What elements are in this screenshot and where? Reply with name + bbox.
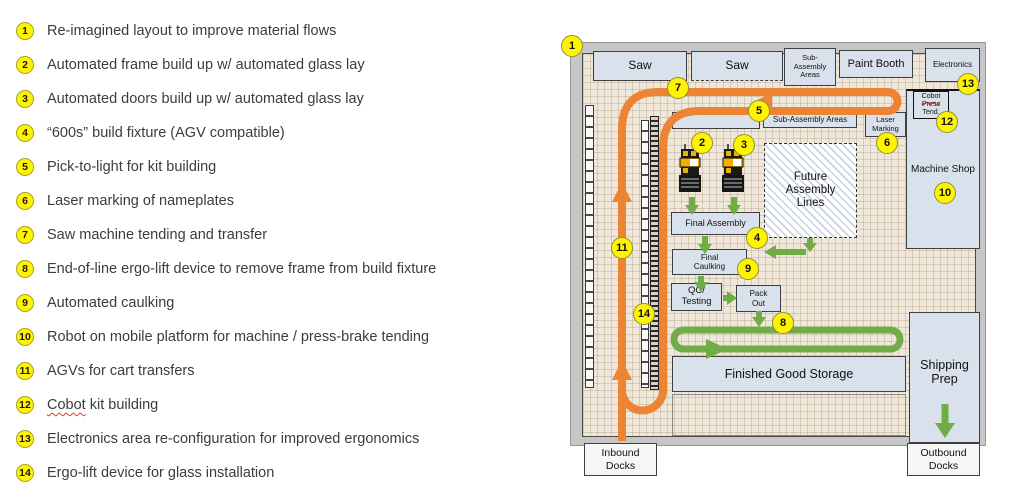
room-sub-assembly-top: Sub-Assembly Areas	[784, 48, 836, 86]
legend-text: Re-imagined layout to improve material f…	[47, 23, 336, 39]
storage-rack-center	[641, 120, 649, 388]
room-paint-booth: Paint Booth	[839, 50, 913, 78]
room-label: Shipping Prep	[919, 358, 971, 387]
open-floor-region	[672, 394, 906, 436]
room-saw-1: Saw	[593, 51, 687, 81]
room-qc-testing: QC/ Testing	[671, 283, 722, 311]
legend-item: 10 Robot on mobile platform for machine …	[10, 320, 530, 354]
legend-number: 3	[22, 93, 28, 105]
legend-text: Automated frame build up w/ automated gl…	[47, 57, 365, 73]
diagram-badge-11: 11	[611, 237, 633, 259]
legend-number-badge: 7	[16, 226, 34, 244]
diagram-badge-8: 8	[772, 312, 794, 334]
legend-item: 6 Laser marking of nameplates	[10, 184, 530, 218]
legend-number-badge: 4	[16, 124, 34, 142]
room-label: Future Assembly Lines	[781, 171, 841, 211]
diagram-badge-13: 13	[957, 73, 979, 95]
legend-text: Automated caulking	[47, 295, 174, 311]
room-label: Laser Marking	[869, 116, 903, 133]
diagram-badge-9: 9	[737, 258, 759, 280]
legend-item: 14 Ergo-lift device for glass installati…	[10, 456, 530, 490]
legend-number: 1	[22, 25, 28, 37]
legend-item: 11 AGVs for cart transfers	[10, 354, 530, 388]
legend-item: 7 Saw machine tending and transfer	[10, 218, 530, 252]
slide: 1 Re-imagined layout to improve material…	[0, 0, 1024, 503]
legend-number-badge: 1	[16, 22, 34, 40]
legend-item: 2 Automated frame build up w/ automated …	[10, 48, 530, 82]
storage-rack-left	[585, 105, 594, 388]
room-label: Inbound Docks	[597, 447, 645, 471]
room-outbound-docks: Outbound Docks	[907, 443, 980, 476]
room-label-line: Press	[922, 101, 940, 109]
room-label: Electronics	[933, 60, 972, 69]
legend-text: Laser marking of nameplates	[47, 193, 234, 209]
room-label: Saw	[725, 59, 748, 73]
legend-item: 1 Re-imagined layout to improve material…	[10, 14, 530, 48]
room-pack-out: Pack Out	[736, 285, 781, 312]
diagram-badge-10: 10	[934, 182, 956, 204]
room-label-line: Cobot	[922, 93, 941, 101]
legend-number-badge: 5	[16, 158, 34, 176]
legend-number: 5	[22, 161, 28, 173]
room-label: Outbound Docks	[918, 447, 970, 471]
legend-number-badge: 14	[16, 464, 34, 482]
legend: 1 Re-imagined layout to improve material…	[10, 14, 530, 490]
legend-text: Ergo-lift device for glass installation	[47, 465, 274, 481]
room-label: QC/ Testing	[680, 286, 714, 308]
legend-number: 9	[22, 297, 28, 309]
legend-number-badge: 6	[16, 192, 34, 210]
diagram-badge-6: 6	[876, 132, 898, 154]
room-label: Machine Shop	[911, 164, 975, 176]
legend-number-badge: 9	[16, 294, 34, 312]
diagram-badge-3: 3	[733, 134, 755, 156]
legend-text: Cobot kit building	[47, 397, 158, 413]
legend-item: 3 Automated doors build up w/ automated …	[10, 82, 530, 116]
legend-text: Robot on mobile platform for machine / p…	[47, 329, 429, 345]
diagram-badge-12: 12	[936, 111, 958, 133]
legend-number: 7	[22, 229, 28, 241]
legend-number-badge: 3	[16, 90, 34, 108]
legend-number: 14	[19, 467, 31, 479]
room-label: Sub-Assembly Areas	[773, 115, 847, 124]
legend-number: 10	[19, 331, 31, 343]
room-finished-good-storage: Finished Good Storage	[672, 356, 906, 392]
legend-text: Electronics area re-configuration for im…	[47, 431, 419, 447]
legend-item: 12 Cobot kit building	[10, 388, 530, 422]
legend-number: 12	[19, 399, 31, 411]
diagram-badge-5: 5	[748, 100, 770, 122]
room-label: Final Assembly	[685, 218, 746, 228]
legend-number: 4	[22, 127, 28, 139]
room-label: Saw	[628, 59, 651, 73]
legend-text: Automated doors build up w/ automated gl…	[47, 91, 364, 107]
room-label: Paint Booth	[848, 58, 905, 71]
legend-number-badge: 13	[16, 430, 34, 448]
legend-item: 4 “600s” build fixture (AGV compatible)	[10, 116, 530, 150]
diagram-badge-1: 1	[561, 35, 583, 57]
room-label: Sub-Assembly Areas	[790, 54, 830, 80]
legend-text: Saw machine tending and transfer	[47, 227, 267, 243]
legend-item: 9 Automated caulking	[10, 286, 530, 320]
diagram-badge-14: 14	[633, 303, 655, 325]
legend-number-badge: 11	[16, 362, 34, 380]
room-shipping-prep: Shipping Prep	[909, 312, 980, 443]
legend-text: AGVs for cart transfers	[47, 363, 194, 379]
legend-number-badge: 10	[16, 328, 34, 346]
room-inbound-docks: Inbound Docks	[584, 443, 657, 476]
room-label: Final Caulking	[692, 253, 728, 271]
legend-text: Pick-to-light for kit building	[47, 159, 216, 175]
legend-number: 13	[19, 433, 31, 445]
diagram-badge-7: 7	[667, 77, 689, 99]
legend-text: End-of-line ergo-lift device to remove f…	[47, 261, 436, 277]
legend-number-badge: 8	[16, 260, 34, 278]
legend-number: 8	[22, 263, 28, 275]
legend-item: 5 Pick-to-light for kit building	[10, 150, 530, 184]
diagram-badge-4: 4	[746, 227, 768, 249]
room-saw-2: Saw	[691, 51, 783, 81]
cart-track-rack	[650, 116, 659, 390]
room-future-assembly-lines: Future Assembly Lines	[764, 143, 857, 238]
legend-number: 11	[19, 365, 30, 377]
room-label: Finished Good Storage	[725, 367, 854, 381]
legend-item: 8 End-of-line ergo-lift device to remove…	[10, 252, 530, 286]
legend-text: “600s” build fixture (AGV compatible)	[47, 125, 285, 141]
legend-number: 2	[22, 59, 28, 71]
legend-number-badge: 2	[16, 56, 34, 74]
room-final-caulking: Final Caulking	[672, 249, 747, 275]
legend-number: 6	[22, 195, 28, 207]
room-kit-area-unlabeled	[672, 112, 760, 129]
room-label: Pack Out	[747, 289, 771, 307]
diagram-badge-2: 2	[691, 132, 713, 154]
legend-number-badge: 12	[16, 396, 34, 414]
legend-item: 13 Electronics area re-configuration for…	[10, 422, 530, 456]
room-sub-assembly-areas: Sub-Assembly Areas	[763, 112, 857, 128]
